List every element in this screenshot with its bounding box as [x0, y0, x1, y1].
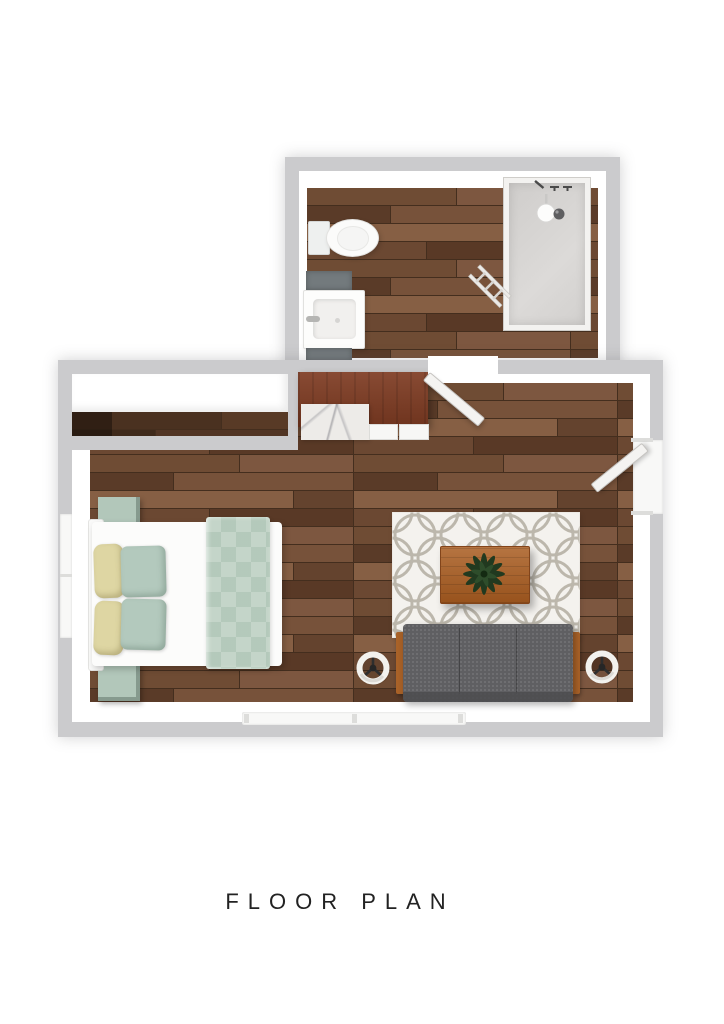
window-bottom-jamb-left	[244, 714, 249, 723]
window-bottom	[242, 712, 466, 725]
bathroom-doorway	[428, 356, 498, 378]
toilet	[326, 219, 379, 257]
sofa-seam-2	[516, 628, 517, 694]
page-title: FLOOR PLAN	[0, 889, 724, 915]
pillow-sage-top	[120, 545, 166, 597]
duvet	[206, 517, 270, 669]
closet-floor	[72, 412, 288, 436]
side-stool-right	[583, 648, 621, 686]
window-left-mullion	[60, 574, 72, 577]
sofa-seam-1	[459, 628, 460, 694]
faucet-icon	[306, 316, 320, 322]
showerhead-icon	[520, 180, 584, 230]
plant-icon	[460, 550, 508, 598]
sofa	[403, 624, 573, 702]
nightstand-bottom	[98, 663, 140, 701]
sink-drain	[335, 318, 340, 323]
pillow-sage-bottom	[120, 598, 166, 650]
window-left	[60, 514, 72, 638]
sink-vanity	[303, 290, 365, 349]
cabinet-door-right	[399, 424, 429, 440]
window-bottom-jamb-right	[458, 714, 463, 723]
floor-plan-page: FLOOR PLAN	[0, 0, 724, 1024]
cabinet-door-left	[369, 424, 398, 440]
closet-shelf	[72, 374, 288, 412]
side-stool-left	[354, 649, 392, 687]
entry-jamb-bottom	[631, 511, 653, 515]
entry-jamb-top	[631, 438, 653, 442]
marble-countertop	[301, 404, 369, 440]
bath-mat-top	[306, 271, 352, 290]
sofa-front-edge	[403, 692, 573, 702]
window-bottom-mullion	[352, 714, 357, 723]
towel-ladder-icon	[460, 256, 520, 316]
